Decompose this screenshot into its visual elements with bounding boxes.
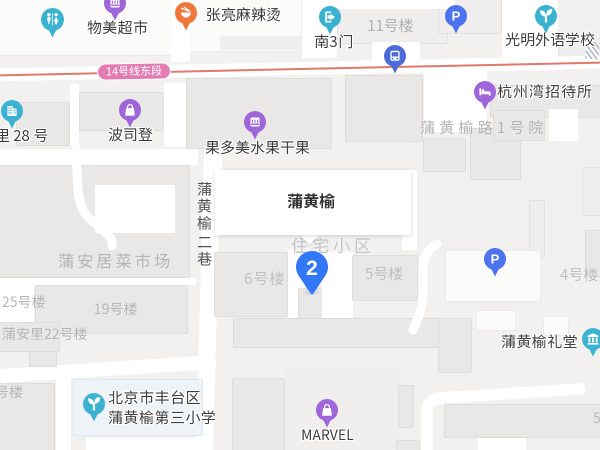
svg-text:P: P [452, 9, 461, 24]
svg-text:2: 2 [306, 257, 318, 280]
svg-text:P: P [491, 252, 500, 267]
